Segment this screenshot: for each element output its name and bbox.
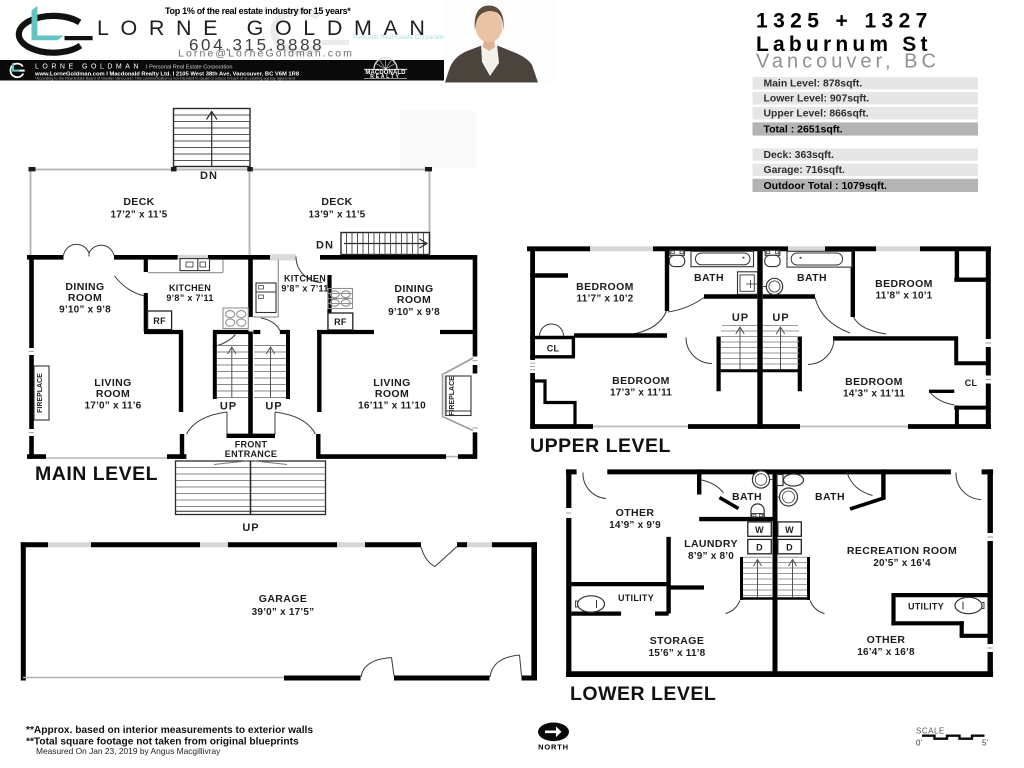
svg-text:16’4” x 16’8: 16’4” x 16’8 xyxy=(857,647,915,658)
svg-text:ROOM: ROOM xyxy=(68,292,102,304)
svg-text:Main Level: 878sqft.: Main Level: 878sqft. xyxy=(764,79,863,90)
svg-text:W: W xyxy=(785,525,794,535)
svg-text:14’9” x 9’9: 14’9” x 9’9 xyxy=(609,520,661,531)
svg-text:ROOM: ROOM xyxy=(96,388,130,400)
svg-text:ENTRANCE: ENTRANCE xyxy=(225,449,277,459)
svg-text:CL: CL xyxy=(965,378,978,388)
svg-text:20’5” x 16’4: 20’5” x 16’4 xyxy=(873,558,931,569)
svg-text:5’: 5’ xyxy=(982,739,988,748)
svg-text:FRONT: FRONT xyxy=(235,440,268,450)
svg-text:0’: 0’ xyxy=(916,739,922,748)
svg-text:9’8” x 7’11: 9’8” x 7’11 xyxy=(166,293,213,303)
svg-text:9’10” x 9’8: 9’10” x 9’8 xyxy=(388,307,440,318)
svg-text:BATH: BATH xyxy=(694,272,724,284)
svg-text:BEDROOM: BEDROOM xyxy=(875,278,933,290)
svg-text:NORTH: NORTH xyxy=(538,743,569,752)
svg-text:UP: UP xyxy=(220,401,237,413)
svg-text:**Approx. based on interior me: **Approx. based on interior measurements… xyxy=(26,725,313,736)
svg-text:14’3” x 11’11: 14’3” x 11’11 xyxy=(843,389,905,400)
svg-text:DECK: DECK xyxy=(123,196,154,208)
svg-text:BATH: BATH xyxy=(732,491,762,503)
svg-text:Lorne@LorneGoldman.com: Lorne@LorneGoldman.com xyxy=(178,48,354,60)
svg-text:UP: UP xyxy=(265,401,282,413)
svg-text:17’0” x 11’6: 17’0” x 11’6 xyxy=(85,401,142,412)
svg-text:11’8” x 10’1: 11’8” x 10’1 xyxy=(876,291,933,302)
svg-text:Total : 2651sqft.: Total : 2651sqft. xyxy=(764,124,843,136)
svg-text:BEDROOM: BEDROOM xyxy=(845,376,903,388)
svg-text:16’11” x 11’10: 16’11” x 11’10 xyxy=(358,401,426,412)
svg-text:BATH: BATH xyxy=(797,272,827,284)
svg-text:RF: RF xyxy=(153,316,166,326)
svg-text:UPPER LEVEL: UPPER LEVEL xyxy=(530,435,671,457)
svg-text:ROOM: ROOM xyxy=(375,388,409,400)
svg-text:9’8” x 7’11: 9’8” x 7’11 xyxy=(281,284,328,294)
svg-text:LAUNDRY: LAUNDRY xyxy=(684,538,738,550)
svg-text:RF: RF xyxy=(334,317,347,327)
svg-text:Measured On Jan 23, 2019 by An: Measured On Jan 23, 2019 by Angus Macgil… xyxy=(36,746,221,756)
svg-text:LORNE GOLDMAN: LORNE GOLDMAN xyxy=(35,64,142,71)
svg-text:GARAGE: GARAGE xyxy=(259,593,308,605)
svg-text:FIREPLACE: FIREPLACE xyxy=(37,373,44,413)
svg-text:ROOM: ROOM xyxy=(397,294,431,306)
svg-text:LOWER LEVEL: LOWER LEVEL xyxy=(570,683,716,705)
svg-text:D: D xyxy=(756,543,763,553)
svg-text:UP: UP xyxy=(242,522,259,534)
svg-text:Upper Level: 866sqft.: Upper Level: 866sqft. xyxy=(764,109,869,120)
svg-text:Deck: 363sqft.: Deck: 363sqft. xyxy=(764,150,835,161)
svg-text:15’6” x 11’8: 15’6” x 11’8 xyxy=(649,648,706,659)
svg-text:Personal Real Estate Corporati: Personal Real Estate Corporation xyxy=(353,34,449,41)
svg-text:BEDROOM: BEDROOM xyxy=(576,281,634,293)
svg-text:REALTY: REALTY xyxy=(370,74,400,80)
svg-text:Outdoor Total : 1079sqft.: Outdoor Total : 1079sqft. xyxy=(764,180,888,192)
svg-text:CL: CL xyxy=(547,344,560,354)
svg-text:RECREATION ROOM: RECREATION ROOM xyxy=(847,545,957,557)
svg-text:OTHER: OTHER xyxy=(867,634,906,646)
svg-text:1325 + 1327: 1325 + 1327 xyxy=(756,10,933,33)
svg-text:FIREPLACE: FIREPLACE xyxy=(449,376,456,416)
svg-text:I Personal Real Estate Corpor: I Personal Real Estate Corporation xyxy=(146,64,232,70)
svg-text:11’7” x 10’2: 11’7” x 10’2 xyxy=(577,294,634,305)
svg-text:MAIN LEVEL: MAIN LEVEL xyxy=(35,463,158,485)
svg-text:Garage: 716sqft.: Garage: 716sqft. xyxy=(764,165,846,176)
svg-text:17’2” x 11’5: 17’2” x 11’5 xyxy=(111,210,168,221)
svg-text:Lower Level: 907sqft.: Lower Level: 907sqft. xyxy=(764,94,870,105)
svg-text:Top 1% of the real estate indu: Top 1% of the real estate industry for 1… xyxy=(165,6,351,16)
svg-text:DN: DN xyxy=(316,240,334,252)
svg-text:39’0” x 17’5”: 39’0” x 17’5” xyxy=(252,607,315,618)
svg-text:SCALE: SCALE xyxy=(916,727,945,736)
svg-text:D: D xyxy=(786,543,793,553)
svg-text:KITCHEN: KITCHEN xyxy=(169,283,211,293)
svg-text:8’9” x 8’0: 8’9” x 8’0 xyxy=(688,551,734,562)
svg-text:DECK: DECK xyxy=(321,196,352,208)
svg-text:9’10” x 9’8: 9’10” x 9’8 xyxy=(59,305,111,316)
svg-text:BEDROOM: BEDROOM xyxy=(612,375,670,387)
svg-text:KITCHEN: KITCHEN xyxy=(284,274,326,284)
svg-text:Vancouver, BC: Vancouver, BC xyxy=(756,51,940,73)
svg-text:UTILITY: UTILITY xyxy=(908,602,944,612)
svg-text:OTHER: OTHER xyxy=(616,507,655,519)
svg-text:*According to the Real Estate: *According to the Real Estate Board of G… xyxy=(35,76,296,80)
svg-text:UP: UP xyxy=(732,312,749,324)
svg-text:13’9” x 11’5: 13’9” x 11’5 xyxy=(309,210,366,221)
svg-text:UP: UP xyxy=(772,312,789,324)
svg-text:17’3” x 11’11: 17’3” x 11’11 xyxy=(610,388,672,399)
svg-text:DN: DN xyxy=(200,170,218,182)
svg-text:BATH: BATH xyxy=(815,491,845,503)
svg-text:STORAGE: STORAGE xyxy=(650,635,705,647)
svg-text:UTILITY: UTILITY xyxy=(618,593,654,603)
svg-text:W: W xyxy=(755,525,764,535)
